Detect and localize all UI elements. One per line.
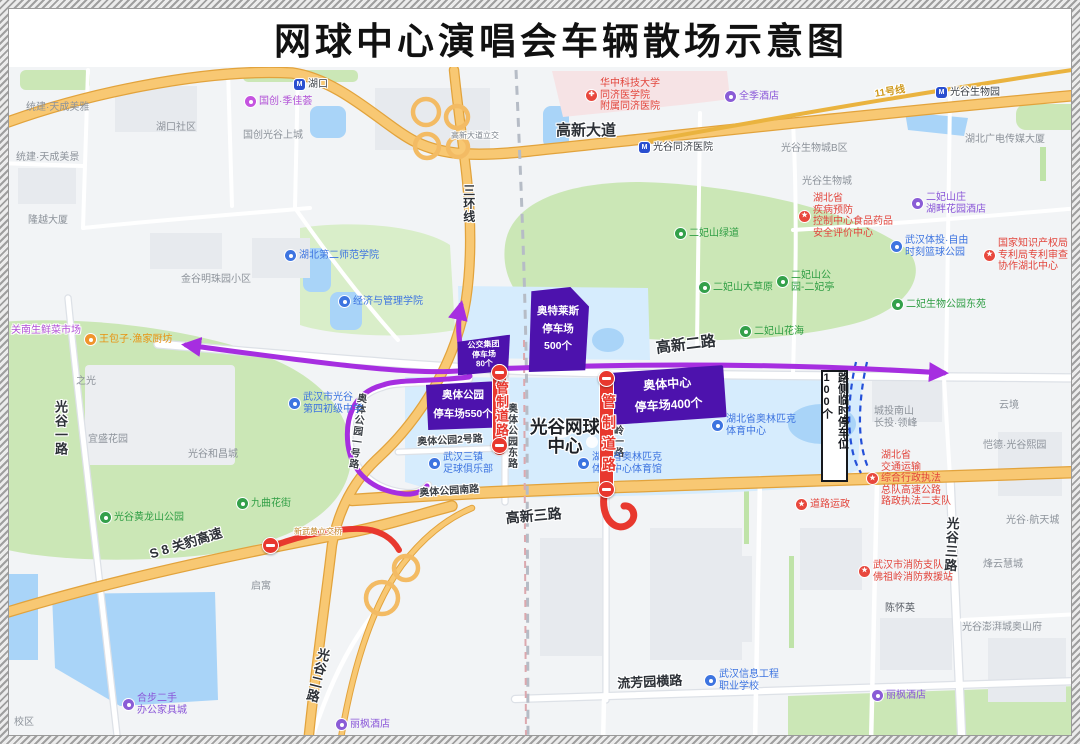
area-jingu-mingzhu: 金谷明珠园小区: [181, 274, 251, 286]
poi-hubei-2nd-normal-univ-label: 湖北第二师范学院: [299, 250, 379, 262]
poi-erfeishan-pavilion-label: 二妃山公 园-二妃亭: [791, 270, 834, 293]
poi-erfei-bio-park-east: 二妃生物公园东苑: [892, 299, 986, 311]
area-biocity-b: 光谷生物城B区: [781, 143, 848, 155]
poi-three-towns-fc-icon: [429, 458, 440, 469]
poi-guochuang-jijiahui-label: 国创·季佳荟: [259, 96, 312, 108]
poi-hebu-furniture-mall-label: 合步二手 办公家具城: [137, 693, 187, 716]
poi-metro-biopark-icon: M: [936, 87, 947, 98]
poi-hubei-olympic-center-label: 湖北省奥林匹克 体育中心: [726, 414, 796, 437]
poi-basketball-park-icon: [891, 241, 902, 252]
poi-tongji-hospital-label: 华中科技大学 同济医学院 附属同济医院: [600, 78, 660, 113]
poi-patent-office-label: 国家知识产权局 专利局专利审查 协作湖北中心: [998, 238, 1068, 273]
poi-transport-enforcement: ★湖北省 交通运输 综合行政执法 总队高速公路 路政执法二支队: [867, 450, 951, 508]
page-title: 网球中心演唱会车辆散场示意图: [232, 11, 848, 65]
roadside-parking-box: 路侧临时停车位100个: [821, 370, 848, 482]
area-zhiguang: 之光: [76, 376, 96, 388]
aoti-center-parking-line2: 停车场400个: [634, 397, 703, 415]
poi-hubei-2nd-normal-univ-icon: [285, 250, 296, 261]
poi-cdc-center-label: 湖北省 疾病预防 控制中心食品药品 安全评价中心: [813, 193, 893, 239]
aoti-park-parking-line1: 奥体公园: [442, 390, 484, 402]
label-xinwuhuang-interchange: 新武黄立交桥: [294, 527, 342, 536]
label-guannan-market: 关南生鲜菜市场: [11, 325, 81, 337]
area-yisheng-garden: 宜盛花园: [88, 434, 128, 446]
poi-jiuqu-flower-street-label: 九曲花街: [251, 498, 291, 510]
poi-info-engineering-school: 武汉信息工程 职业学校: [705, 669, 779, 692]
title-bar: 网球中心演唱会车辆散场示意图: [0, 9, 1080, 67]
poi-transport-enforcement-label: 湖北省 交通运输 综合行政执法 总队高速公路 路政执法二支队: [881, 450, 951, 508]
poi-three-towns-fc: 武汉三镇 足球俱乐部: [429, 452, 493, 475]
poi-erfeishan-flower-sea-icon: [740, 326, 751, 337]
poi-olympic-gymnasium-icon: [578, 458, 589, 469]
area-yunjing: 云境: [999, 400, 1019, 412]
poi-tongji-hospital-icon: ✚: [586, 90, 597, 101]
area-biocity-b-label: 光谷生物城B区: [781, 143, 848, 155]
road-gaoxin-avenue-label: 高新大道: [556, 122, 616, 139]
poi-wangbaozi-restaurant-label: 王包子·渔家厨坊: [99, 334, 172, 346]
area-tianchengmeiya: 统建·天成美雅: [26, 102, 89, 114]
poi-road-transport-admin: ★道路运政: [796, 499, 850, 511]
road-aoti-2: 奥体公园2号路: [417, 434, 483, 449]
poi-tongji-hospital: ✚华中科技大学 同济医学院 附属同济医院: [586, 78, 660, 113]
outlets-parking-line3: 500个: [544, 341, 572, 353]
label-xinwuhuang-interchange-label: 新武黄立交桥: [294, 527, 342, 536]
aoti-center-parking-line1: 奥体中心: [643, 376, 692, 393]
poi-patent-office: ★国家知识产权局 专利局专利审查 协作湖北中心: [984, 238, 1068, 273]
poi-erfeishanzhuang-hotel-icon: [912, 198, 923, 209]
poi-erfeishan-flower-sea: 二妃山花海: [740, 326, 804, 338]
poi-erfeishan-grassland-label: 二妃山大草原: [713, 282, 773, 294]
poi-road-transport-admin-label: 道路运政: [810, 499, 850, 511]
poi-lavande-hotel-west-icon: [336, 719, 347, 730]
poi-econ-mgmt-college: 经济与管理学院: [339, 296, 423, 308]
area-longyue-tower-label: 隆越大厦: [28, 215, 68, 227]
label-gaoxin-interchange: 高新大道立交: [451, 131, 499, 140]
area-hechangcheng: 光谷和昌城: [188, 449, 238, 461]
poi-erfeishan-flower-sea-label: 二妃山花海: [754, 326, 804, 338]
poi-econ-mgmt-college-icon: [339, 296, 350, 307]
poi-basketball-park-label: 武汉体投·自由 时刻篮球公园: [905, 235, 968, 258]
area-xiaoqu: 校区: [14, 717, 34, 729]
road-s8-guanbao-expwy-label: S 8 关豹高速: [148, 526, 224, 562]
area-pengpaicheng-label: 光谷澎湃城奥山府: [962, 622, 1042, 634]
area-chengtou-nanshan: 城投南山 长投·领峰: [874, 406, 917, 429]
label-metro-line-11-label: 11号线: [874, 84, 906, 100]
poi-hebu-furniture-mall-icon: [123, 699, 134, 710]
road-sanhuan-line-label: 三环线: [462, 184, 476, 223]
area-chengtou-nanshan-label: 城投南山 长投·领峰: [874, 406, 917, 429]
poi-fire-station-label: 武汉市消防支队 佛祖岭消防救援站: [873, 560, 953, 583]
no-entry-icon: [491, 437, 508, 454]
area-yunjing-label: 云境: [999, 400, 1019, 412]
outlets-parking-line2: 停车场: [542, 324, 574, 336]
poi-hubei-olympic-center-icon: [712, 420, 723, 431]
poi-erfeishanzhuang-hotel: 二妃山庄 湖畔花园酒店: [912, 192, 986, 215]
poi-erfeishan-pavilion-icon: [777, 276, 788, 287]
area-tianchengmeijing: 统建·天成美景: [16, 152, 79, 164]
road-guanggu-1: 光谷一路: [52, 400, 67, 456]
road-aoti-south-label: 奥体公园南路: [419, 484, 480, 500]
road-sanhuan-line: 三环线: [461, 184, 475, 223]
area-guochuang-shangcheng: 国创光谷上城: [243, 130, 303, 142]
area-jingu-mingzhu-label: 金谷明珠园小区: [181, 274, 251, 286]
aoti-park-parking-line2: 停车场550个: [433, 409, 493, 421]
area-biocity-label: 光谷生物城: [802, 176, 852, 188]
area-biocity: 光谷生物城: [802, 176, 852, 188]
road-guanggu-2-label: 光谷二路: [303, 646, 331, 704]
road-guanggu-2: 光谷二路: [302, 646, 330, 704]
outlets-parking-zone: 奥特莱斯 停车场 500个: [527, 287, 589, 372]
poi-lavande-hotel-west: 丽枫酒店: [336, 719, 390, 731]
poi-wangbaozi-restaurant: 王包子·渔家厨坊: [85, 334, 172, 346]
road-gaoxin-2-label: 高新二路: [655, 333, 717, 357]
area-hangtiancheng: 光谷·航天城: [1006, 515, 1059, 527]
area-guochuang-shangcheng-label: 国创光谷上城: [243, 130, 303, 142]
area-qiyu: 启寓: [251, 581, 271, 593]
road-aoti-south: 奥体公园南路: [419, 484, 480, 500]
area-kaide-xiyuan: 恺德·光谷熙园: [983, 440, 1046, 452]
road-aoti-2-label: 奥体公园2号路: [417, 434, 483, 449]
poi-metro-biopark: M光谷生物园: [936, 87, 1000, 99]
poi-erfeishan-greenway-icon: [675, 228, 686, 239]
area-hukou-community-label: 湖口社区: [156, 122, 196, 134]
poi-allseasons-hotel-label: 全季酒店: [739, 91, 779, 103]
area-hukou-community: 湖口社区: [156, 122, 196, 134]
road-gaoxin-avenue: 高新大道: [556, 122, 616, 139]
no-entry-icon: [598, 481, 615, 498]
aoti-park-parking-zone: 奥体公园 停车场550个: [426, 381, 500, 430]
area-gdtv-tower-label: 湖北广电传媒大厦: [965, 134, 1045, 146]
poi-basketball-park: 武汉体投·自由 时刻篮球公园: [891, 235, 968, 258]
poi-guanggu-4th-school-icon: [289, 398, 300, 409]
poi-guochuang-jijiahui-icon: [245, 96, 256, 107]
area-kaide-xiyuan-label: 恺德·光谷熙园: [983, 440, 1046, 452]
bus-parking-line3: 80个: [476, 360, 493, 370]
poi-lavande-hotel-east-icon: [872, 690, 883, 701]
poi-lavande-hotel-east: 丽枫酒店: [872, 690, 926, 702]
area-yisheng-garden-label: 宜盛花园: [88, 434, 128, 446]
road-liufangyuan-heng: 流芳园横路: [617, 674, 683, 692]
poi-allseasons-hotel: 全季酒店: [725, 91, 779, 103]
poi-cdc-center: ★湖北省 疾病预防 控制中心食品药品 安全评价中心: [799, 193, 893, 239]
poi-transport-enforcement-icon: ★: [867, 473, 878, 484]
no-entry-icon: [262, 537, 279, 554]
poi-erfeishanzhuang-hotel-label: 二妃山庄 湖畔花园酒店: [926, 192, 986, 215]
poi-lavande-hotel-west-label: 丽枫酒店: [350, 719, 390, 731]
area-tianchengmeijing-label: 统建·天成美景: [16, 152, 79, 164]
poi-guanggu-4th-school: 武汉市光谷 第四初级中学: [289, 392, 363, 415]
no-entry-icon: [598, 370, 615, 387]
poi-info-engineering-school-label: 武汉信息工程 职业学校: [719, 669, 779, 692]
poi-metro-tongji-hospital-icon: M: [639, 142, 650, 153]
aoti-center-parking-zone: 奥体中心 停车场400个: [609, 365, 726, 425]
poi-metro-hukou-icon: M: [294, 79, 305, 90]
road-s8-guanbao-expwy: S 8 关豹高速: [148, 526, 224, 562]
poi-fire-station-icon: ★: [859, 566, 870, 577]
area-hangtiancheng-label: 光谷·航天城: [1006, 515, 1059, 527]
road-gaoxin-2: 高新二路: [655, 333, 717, 357]
poi-metro-hukou: M湖口: [294, 79, 328, 91]
poi-road-transport-admin-icon: ★: [796, 499, 807, 510]
area-fengyunhuicheng: 烽云慧城: [983, 559, 1023, 571]
poi-wangbaozi-restaurant-icon: [85, 334, 96, 345]
label-metro-line-11: 11号线: [874, 84, 906, 100]
area-zhiguang-label: 之光: [76, 376, 96, 388]
outlets-parking-line1: 奥特莱斯: [537, 306, 579, 318]
poi-jiuqu-flower-street-icon: [237, 498, 248, 509]
poi-erfei-bio-park-east-label: 二妃生物公园东苑: [906, 299, 986, 311]
poi-hubei-olympic-center: 湖北省奥林匹克 体育中心: [712, 414, 796, 437]
poi-fire-station: ★武汉市消防支队 佛祖岭消防救援站: [859, 560, 953, 583]
area-tianchengmeiya-label: 统建·天成美雅: [26, 102, 89, 114]
area-longyue-tower: 隆越大厦: [28, 215, 68, 227]
controlled-road-label-east: 管制道路: [599, 394, 619, 478]
label-layer: 高新大道高新二路高新三路流芳园横路三环线光谷一路光谷二路光谷三路S 8 关豹高速…: [9, 67, 1071, 735]
poi-hebu-furniture-mall: 合步二手 办公家具城: [123, 693, 187, 716]
label-gaoxin-interchange-label: 高新大道立交: [451, 131, 499, 140]
poi-econ-mgmt-college-label: 经济与管理学院: [353, 296, 423, 308]
poi-lavande-hotel-east-label: 丽枫酒店: [886, 690, 926, 702]
road-gaoxin-3-label: 高新三路: [505, 505, 562, 526]
area-xiaoqu-label: 校区: [14, 717, 34, 729]
poi-metro-hukou-label: 湖口: [308, 79, 328, 91]
area-fengyunhuicheng-label: 烽云慧城: [983, 559, 1023, 571]
area-pengpaicheng: 光谷澎湃城奥山府: [962, 622, 1042, 634]
poi-huanglongshan-park: 光谷黄龙山公园: [100, 512, 184, 524]
road-gaoxin-3: 高新三路: [505, 505, 562, 526]
road-guanggu-1-label: 光谷一路: [53, 400, 68, 456]
poi-erfei-bio-park-east-icon: [892, 299, 903, 310]
poi-info-engineering-school-icon: [705, 675, 716, 686]
poi-guanggu-4th-school-label: 武汉市光谷 第四初级中学: [303, 392, 363, 415]
area-gdtv-tower: 湖北广电传媒大厦: [965, 134, 1045, 146]
poi-erfeishan-grassland: 二妃山大草原: [699, 282, 773, 294]
area-hechangcheng-label: 光谷和昌城: [188, 449, 238, 461]
poi-jiuqu-flower-street: 九曲花街: [237, 498, 291, 510]
road-liufangyuan-heng-label: 流芳园横路: [617, 674, 683, 692]
poi-metro-tongji-hospital-label: 光谷同济医院: [653, 142, 713, 154]
poi-guochuang-jijiahui: 国创·季佳荟: [245, 96, 312, 108]
poi-erfeishan-greenway: 二妃山绿道: [675, 228, 739, 240]
poi-hubei-2nd-normal-univ: 湖北第二师范学院: [285, 250, 379, 262]
poi-cdc-center-icon: ★: [799, 211, 810, 222]
controlled-road-label-west: 管制道路: [492, 381, 511, 437]
poi-huanglongshan-park-label: 光谷黄龙山公园: [114, 512, 184, 524]
poi-erfeishan-pavilion: 二妃山公 园-二妃亭: [777, 270, 834, 293]
poi-allseasons-hotel-icon: [725, 91, 736, 102]
area-chenhuaiying: 陈怀英: [885, 603, 915, 615]
poi-huanglongshan-park-icon: [100, 512, 111, 523]
no-entry-icon: [491, 364, 508, 381]
label-guannan-market-label: 关南生鲜菜市场: [11, 325, 81, 337]
poi-erfeishan-greenway-label: 二妃山绿道: [689, 228, 739, 240]
poi-metro-tongji-hospital: M光谷同济医院: [639, 142, 713, 154]
poi-erfeishan-grassland-icon: [699, 282, 710, 293]
map-canvas: 高新大道高新二路高新三路流芳园横路三环线光谷一路光谷二路光谷三路S 8 关豹高速…: [9, 67, 1071, 735]
area-qiyu-label: 启寓: [251, 581, 271, 593]
area-chenhuaiying-label: 陈怀英: [885, 603, 915, 615]
poi-patent-office-icon: ★: [984, 250, 995, 261]
poi-metro-biopark-label: 光谷生物园: [950, 87, 1000, 99]
poi-three-towns-fc-label: 武汉三镇 足球俱乐部: [443, 452, 493, 475]
